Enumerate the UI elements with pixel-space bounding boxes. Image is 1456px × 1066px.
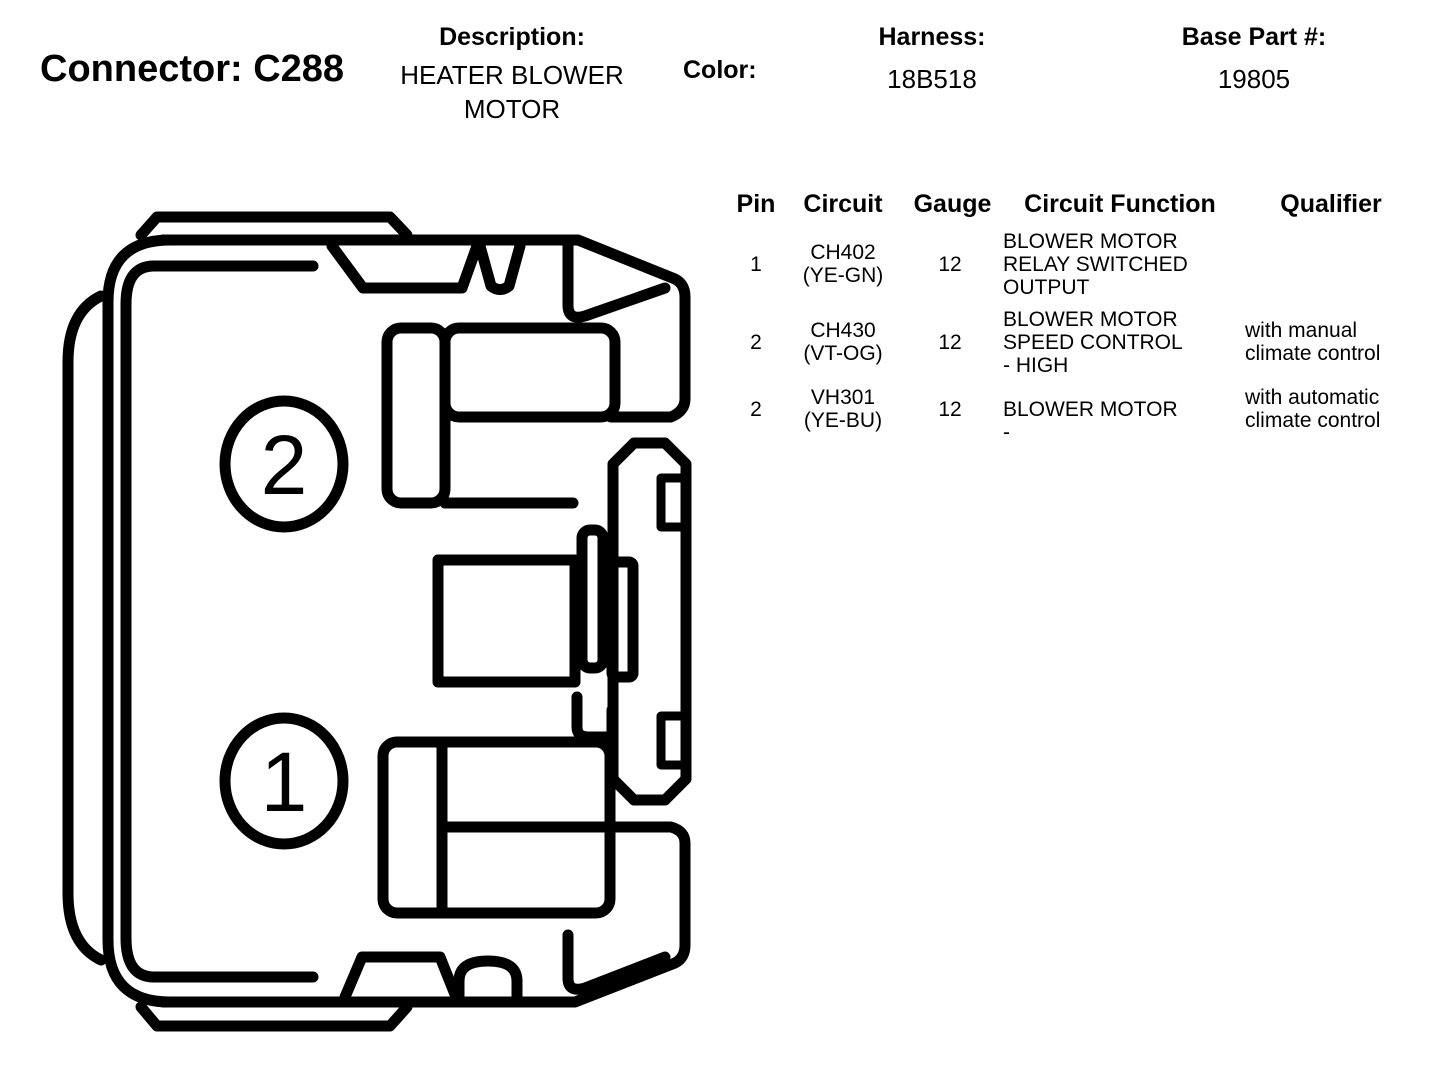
circuit-function-cell: BLOWER MOTOR - [1003,398,1188,444]
connector-face-drawing: 2 1 [0,0,728,1066]
base-part-label: Base Part #: [1154,22,1354,52]
top-tab [141,217,407,235]
circuit-cell: VH301 (YE-BU) [778,386,908,432]
bottom-keyway-trapezoid [345,957,456,997]
pin-2-label: 2 [261,418,308,512]
latch-slot-bottom [661,716,686,765]
connector-body: 2 1 [68,217,686,1026]
pin-cell: 1 [726,253,786,276]
base-part-block: Base Part #: 19805 [1154,22,1354,96]
bottom-keyway-dome [459,961,517,997]
connector-page: Connector: C288 Description: HEATER BLOW… [0,0,1456,1066]
circuit-function-cell: BLOWER MOTOR RELAY SWITCHED OUTPUT [1003,230,1188,299]
body-left-outline [108,240,170,1002]
gauge-cell: 12 [915,398,985,421]
harness-value: 18B518 [857,62,1007,96]
pin-cell: 2 [726,331,786,354]
circuit-id: CH402 [778,241,908,264]
inner-face-bottom-right [568,935,665,989]
circuit-wire-color: (YE-BU) [778,409,908,432]
qualifier-cell: with manual climate control [1245,319,1400,365]
circuit-id: CH430 [778,319,908,342]
column-header-circuit: Circuit [778,190,908,219]
harness-block: Harness: 18B518 [857,22,1007,96]
circuit-function-cell: BLOWER MOTOR SPEED CONTROL - HIGH [1003,308,1188,377]
bottom-tab [141,1007,407,1026]
upper-pocket-wide-slot [445,328,615,417]
pin-cell: 2 [726,398,786,421]
column-header-pin: Pin [726,190,786,219]
circuit-cell: CH430 (VT-OG) [778,319,908,365]
gauge-cell: 12 [915,253,985,276]
circuit-id: VH301 [778,386,908,409]
upper-pocket-tall-slot [387,328,445,503]
base-part-value: 19805 [1154,62,1354,96]
top-keyway-dome [480,246,520,290]
circuit-cell: CH402 (YE-GN) [778,241,908,287]
column-header-circuit-function: Circuit Function [1010,190,1230,219]
column-header-qualifier: Qualifier [1261,190,1401,219]
lower-step-detail [577,697,612,737]
harness-label: Harness: [857,22,1007,52]
latch-octagon [613,443,686,800]
key-bracket [612,562,633,677]
gauge-cell: 12 [915,331,985,354]
body-offset-left-outline [68,296,101,960]
pin-1-label: 1 [261,735,308,829]
circuit-wire-color: (YE-GN) [778,264,908,287]
center-key-rect [438,560,575,682]
top-keyway-trapezoid [332,246,477,288]
column-header-gauge: Gauge [905,190,1000,219]
latch-slot-top [661,478,686,527]
circuit-wire-color: (VT-OG) [778,342,908,365]
inner-face-outline [126,266,313,977]
key-blade [582,530,603,668]
qualifier-cell: with automatic climate control [1245,386,1400,432]
